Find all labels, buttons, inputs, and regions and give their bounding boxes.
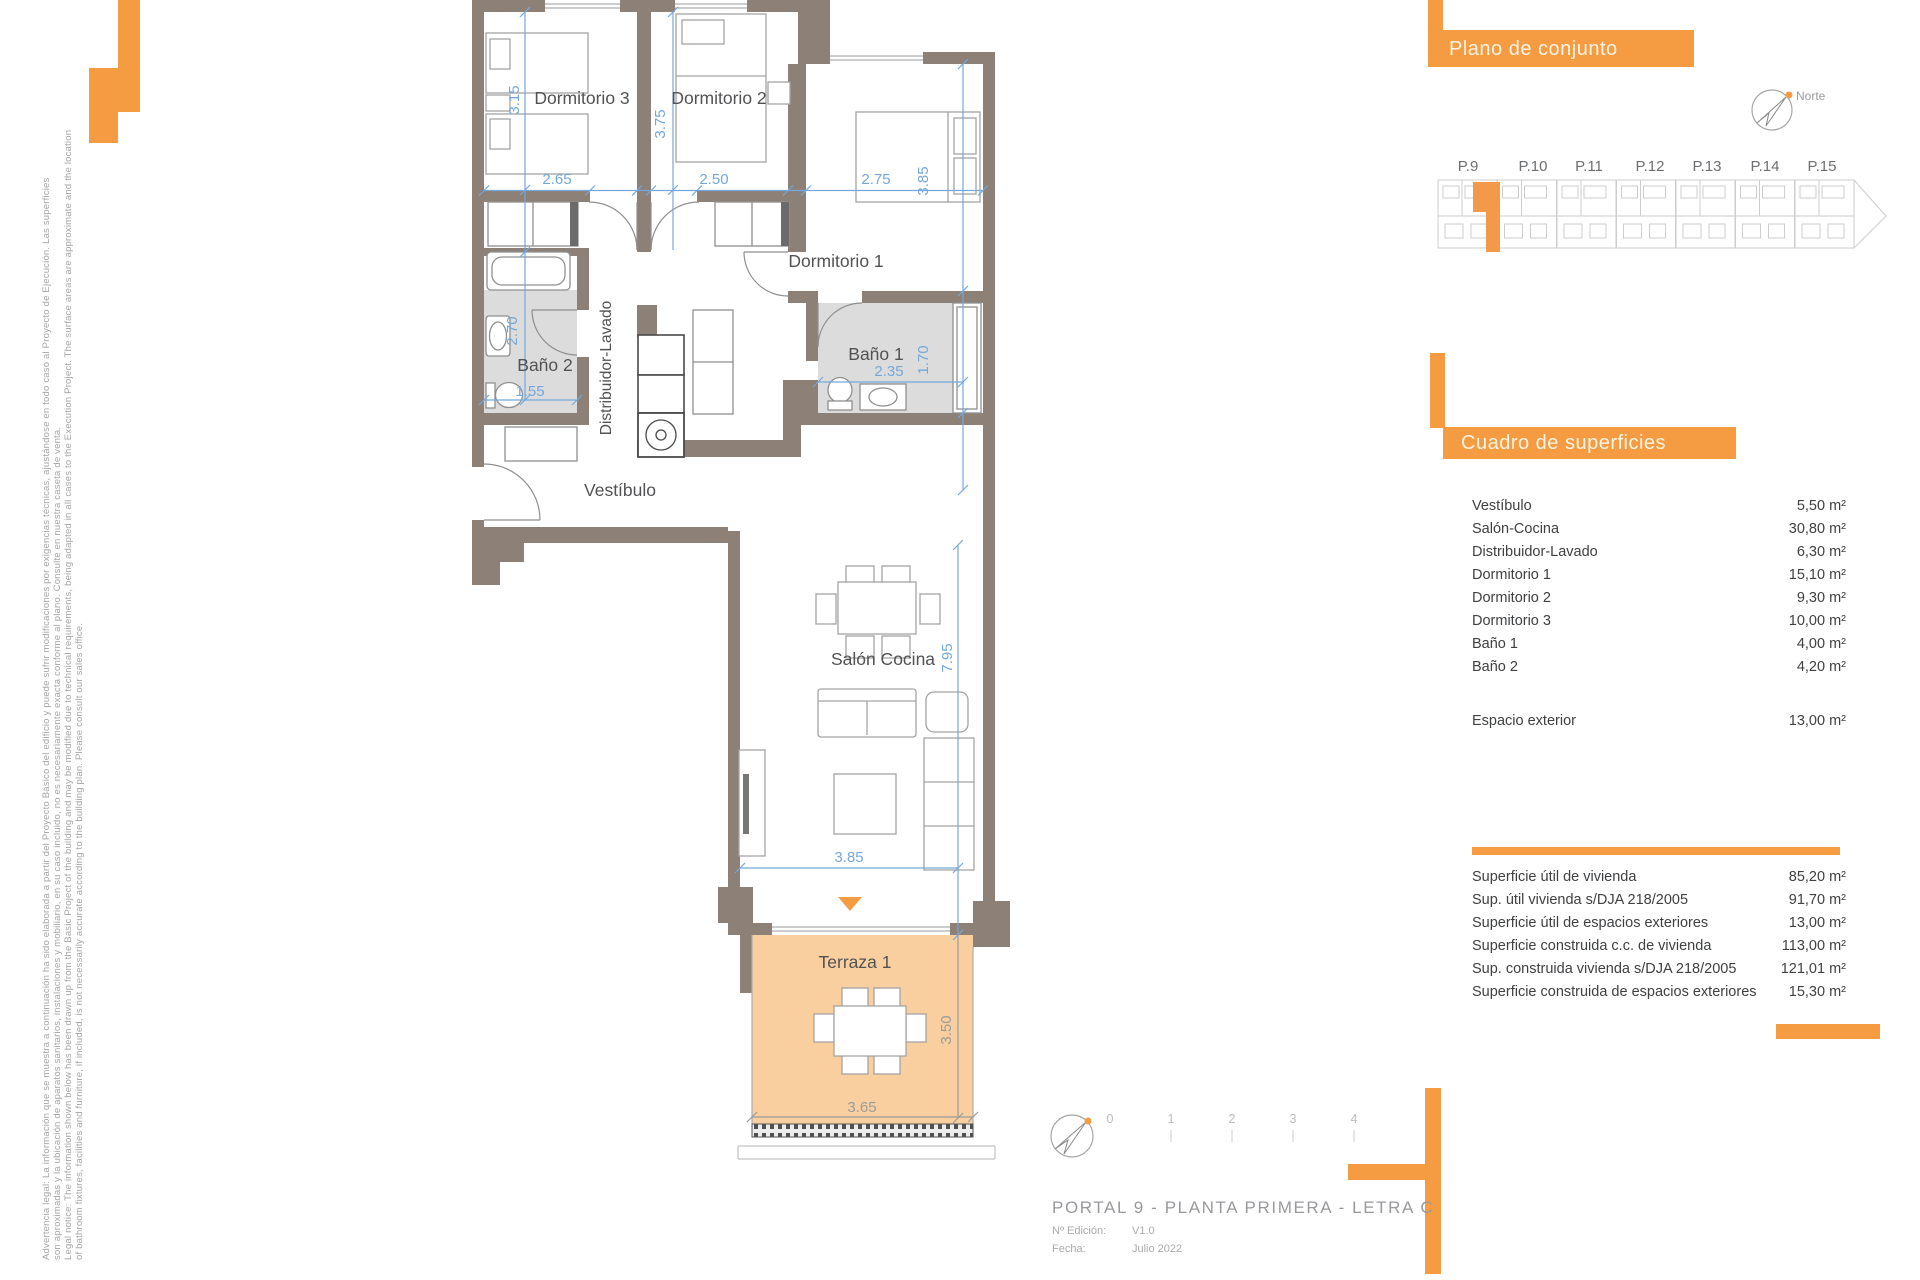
dim-label: 3.85: [915, 166, 932, 195]
room-label-terraza: Terraza 1: [819, 952, 892, 972]
scale-label: 2: [1229, 1112, 1236, 1126]
armchair-icon: [926, 692, 968, 732]
row-label: Superficie útil de vivienda: [1472, 866, 1636, 889]
table-row: Baño 24,20 m²: [1472, 656, 1846, 679]
summary-rule: [1472, 847, 1840, 855]
room-label-bano1: Baño 1: [848, 344, 903, 364]
summary-accent: [1776, 1024, 1880, 1039]
corner-accent: [118, 0, 140, 112]
building-labels: P.9 P.10 P.11 P.12 P.13 P.14 P.15: [1458, 158, 1837, 175]
row-value: 9,30 m²: [1797, 587, 1846, 610]
table-row-exterior: Espacio exterior13,00 m²: [1472, 710, 1846, 733]
site-plan: P.9 P.10 P.11 P.12 P.13 P.14 P.15: [1438, 158, 1886, 252]
row-value: 85,20 m²: [1789, 866, 1846, 889]
row-label: Dormitorio 1: [1472, 564, 1551, 587]
scale-label: 4: [1351, 1112, 1358, 1126]
page-title: PORTAL 9 - PLANTA PRIMERA - LETRA C: [1052, 1198, 1434, 1218]
row-value: 13,00 m²: [1789, 912, 1846, 935]
building-label: P.15: [1808, 158, 1837, 175]
corner-accent: [1348, 1164, 1426, 1180]
site-plan-header: Plano de conjunto: [1449, 38, 1618, 60]
row-value: 30,80 m²: [1789, 518, 1846, 541]
table-row: Sup. construida vivienda s/DJA 218/20051…: [1472, 958, 1846, 981]
terrace-sliding-door: [772, 924, 950, 934]
row-value: 5,50 m²: [1797, 495, 1846, 518]
dim-label: 7.95: [939, 643, 956, 672]
north-compass-icon: Norte: [1752, 89, 1826, 130]
summary-table: Superficie útil de vivienda85,20 m² Sup.…: [1472, 866, 1846, 1004]
dining-table-icon: [838, 582, 916, 634]
row-value: 4,20 m²: [1797, 656, 1846, 679]
north-label: Norte: [1796, 89, 1826, 103]
table-row: Baño 14,00 m²: [1472, 633, 1846, 656]
building-label: P.14: [1751, 158, 1780, 175]
dim-label: 3.15: [506, 85, 523, 114]
table-row: Superficie útil de espacios exteriores13…: [1472, 912, 1846, 935]
scale-label: 3: [1290, 1112, 1297, 1126]
building-label: P.11: [1575, 158, 1603, 175]
kitchen-counter: [924, 738, 974, 870]
table-row: Dormitorio 115,10 m²: [1472, 564, 1846, 587]
table-row: Salón-Cocina30,80 m²: [1472, 518, 1846, 541]
row-value: 15,10 m²: [1789, 564, 1846, 587]
building-label: P.13: [1693, 158, 1722, 175]
table-row: Sup. útil vivienda s/DJA 218/200591,70 m…: [1472, 889, 1846, 912]
row-value: 6,30 m²: [1797, 541, 1846, 564]
room-label-salon: Salón Cocina: [831, 649, 935, 669]
row-label: Baño 2: [1472, 656, 1518, 679]
surfaces-header: Cuadro de superficies: [1461, 432, 1666, 454]
room-label-dormitorio2: Dormitorio 2: [671, 88, 766, 108]
entry-door-icon: [484, 464, 540, 520]
scale-label: 0: [1107, 1112, 1114, 1126]
room-label-bano2: Baño 2: [517, 355, 572, 375]
edition-label: Nº Edición:: [1052, 1225, 1132, 1237]
edition-value: V1.0: [1132, 1225, 1155, 1237]
dim-label: 3.65: [847, 1099, 876, 1116]
row-label: Espacio exterior: [1472, 710, 1576, 733]
building-label: P.12: [1636, 158, 1665, 175]
dim-label: 2.70: [504, 316, 521, 345]
scale-label: 1: [1168, 1112, 1175, 1126]
dim-label: 2.50: [699, 171, 728, 188]
row-label: Sup. construida vivienda s/DJA 218/2005: [1472, 958, 1736, 981]
tv-unit-icon: [739, 750, 765, 856]
row-value: 10,00 m²: [1789, 610, 1846, 633]
table-row: Superficie construida de espacios exteri…: [1472, 981, 1846, 1004]
table-row: Dormitorio 310,00 m²: [1472, 610, 1846, 633]
row-value: 13,00 m²: [1789, 710, 1846, 733]
dim-label: 1.70: [915, 345, 932, 374]
floor-plan: 3.15 2.65 3.75 2.50 2.75 3.85 2.70 1.55 …: [472, 0, 1010, 1159]
dim-label: 2.35: [874, 363, 903, 380]
row-value: 4,00 m²: [1797, 633, 1846, 656]
row-value: 121,01 m²: [1781, 958, 1846, 981]
title-block: PORTAL 9 - PLANTA PRIMERA - LETRA C Nº E…: [1052, 1198, 1434, 1255]
room-label-dormitorio1: Dormitorio 1: [788, 251, 883, 271]
date-value: Julio 2022: [1132, 1243, 1182, 1255]
dim-label: 2.75: [861, 171, 890, 188]
row-value: 91,70 m²: [1789, 889, 1846, 912]
building-label: P.10: [1519, 158, 1548, 175]
table-row: Dormitorio 29,30 m²: [1472, 587, 1846, 610]
entrance-marker-icon: [838, 897, 862, 911]
building-label: P.9: [1458, 158, 1479, 175]
dim-label: 3.50: [938, 1015, 955, 1044]
table-row: Superficie construida c.c. de vivienda11…: [1472, 935, 1846, 958]
room-label-distribuidor: Distribuidor-Lavado: [598, 301, 615, 435]
plan-sheet: Advertencia legal: La información que se…: [0, 0, 1920, 1280]
table-row: Distribuidor-Lavado6,30 m²: [1472, 541, 1846, 564]
row-label: Superficie construida c.c. de vivienda: [1472, 935, 1711, 958]
row-label: Dormitorio 3: [1472, 610, 1551, 633]
dim-label: 2.65: [542, 171, 571, 188]
row-label: Distribuidor-Lavado: [1472, 541, 1598, 564]
terrace-table-icon: [834, 1006, 906, 1056]
toilet-icon: [486, 383, 495, 408]
row-label: Vestíbulo: [1472, 495, 1532, 518]
coffee-table-icon: [834, 774, 896, 834]
corner-accent: [89, 68, 118, 143]
dim-label: 1.55: [515, 383, 544, 400]
date-label: Fecha:: [1052, 1243, 1132, 1255]
toilet-icon: [828, 378, 852, 403]
row-label: Dormitorio 2: [1472, 587, 1551, 610]
row-label: Baño 1: [1472, 633, 1518, 656]
dim-label: 3.85: [834, 849, 863, 866]
row-value: 113,00 m²: [1782, 935, 1846, 958]
highlighted-unit: [1473, 182, 1500, 252]
room-label-dormitorio3: Dormitorio 3: [534, 88, 629, 108]
row-label: Superficie útil de espacios exteriores: [1472, 912, 1708, 935]
row-label: Salón-Cocina: [1472, 518, 1559, 541]
row-value: 15,30 m²: [1789, 981, 1846, 1004]
table-row: Vestíbulo5,50 m²: [1472, 495, 1846, 518]
scale-bar: 0 1 2 3 4: [1051, 1112, 1358, 1157]
dim-label: 3.75: [652, 109, 669, 138]
row-label: Superficie construida de espacios exteri…: [1472, 981, 1757, 1004]
room-label-vestibulo: Vestíbulo: [584, 480, 656, 500]
row-label: Sup. útil vivienda s/DJA 218/2005: [1472, 889, 1688, 912]
surfaces-table: Vestíbulo5,50 m² Salón-Cocina30,80 m² Di…: [1472, 495, 1846, 733]
table-row: Superficie útil de vivienda85,20 m²: [1472, 866, 1846, 889]
